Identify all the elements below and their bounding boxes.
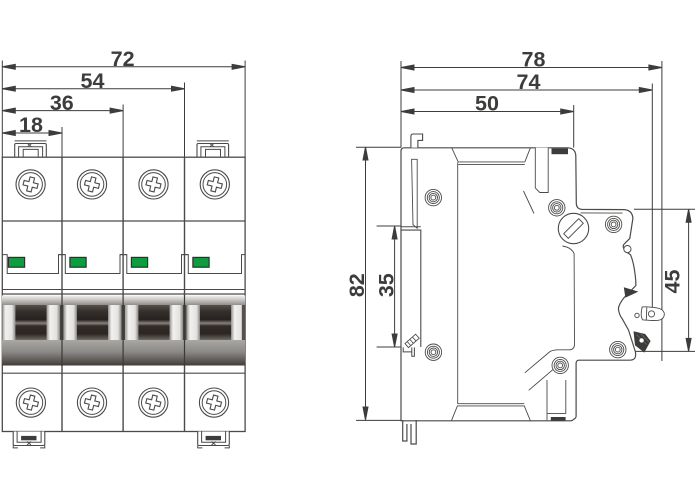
svg-text:18: 18	[19, 113, 43, 137]
svg-text:82: 82	[345, 273, 369, 297]
svg-text:35: 35	[374, 273, 398, 297]
svg-text:36: 36	[50, 91, 74, 115]
svg-text:50: 50	[475, 92, 499, 116]
svg-text:74: 74	[517, 70, 541, 94]
svg-text:72: 72	[111, 47, 135, 71]
svg-text:45: 45	[660, 270, 684, 294]
svg-text:78: 78	[522, 48, 546, 72]
svg-text:54: 54	[81, 69, 105, 93]
